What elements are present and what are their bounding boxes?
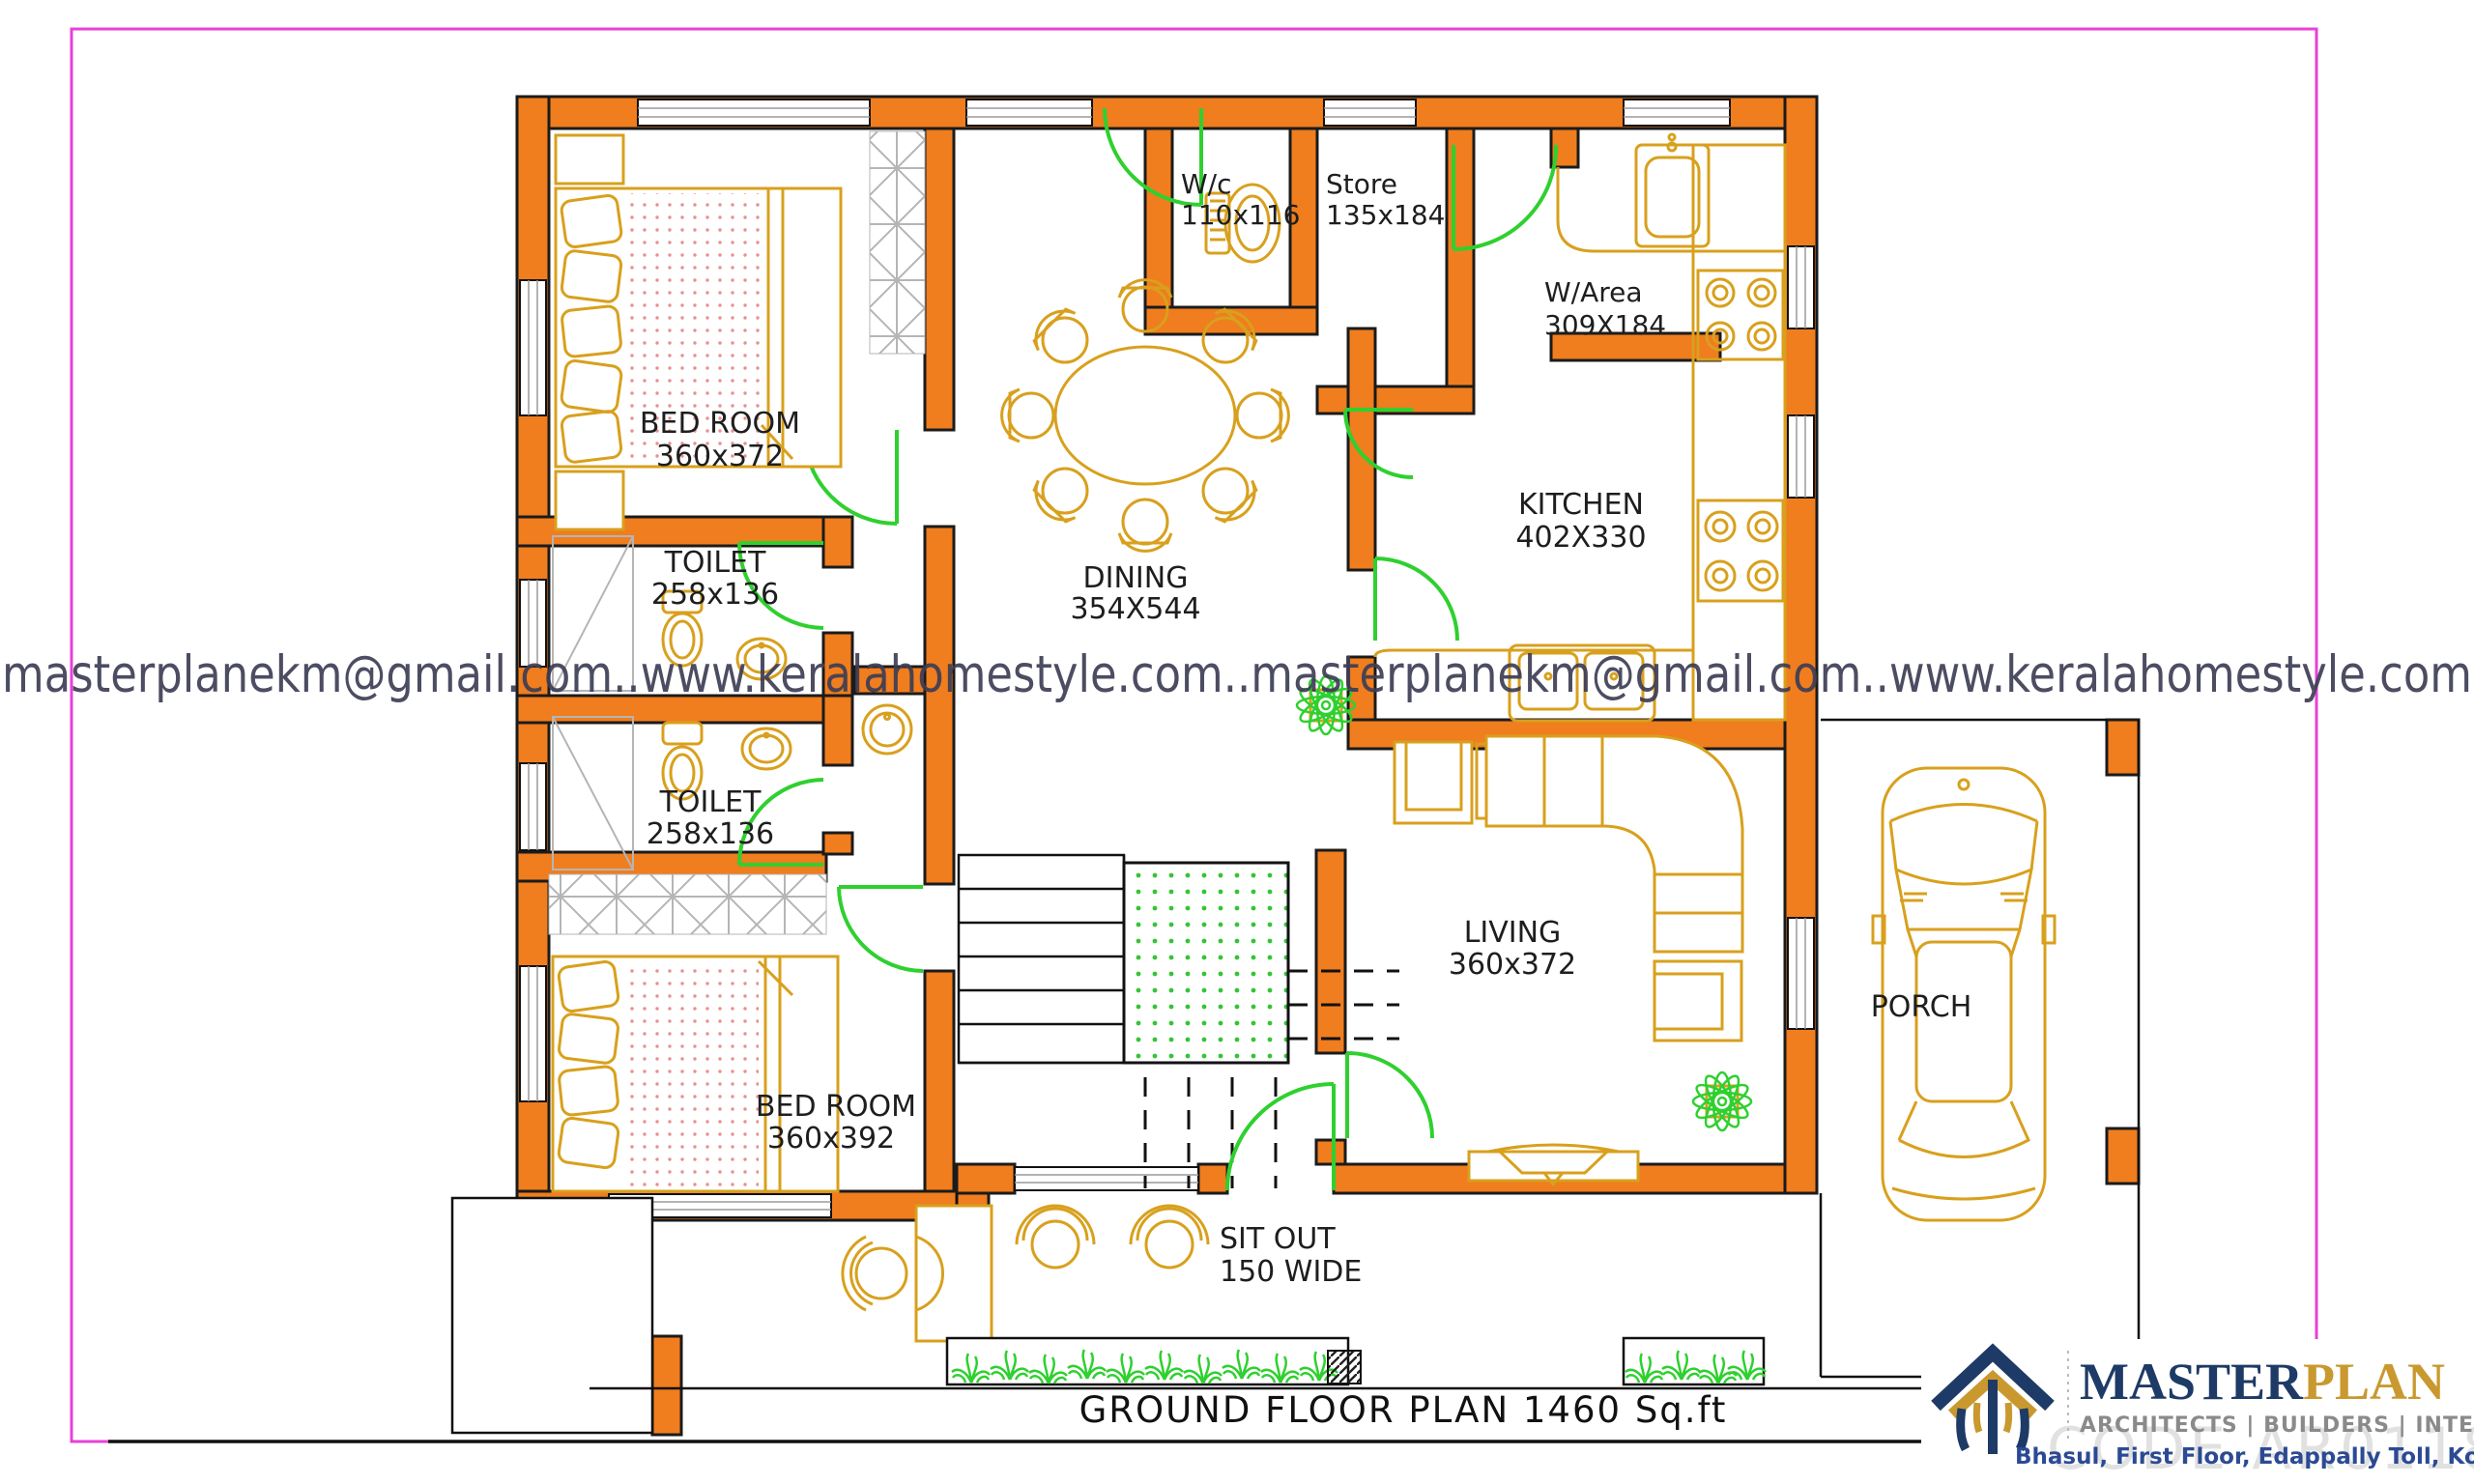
- side-table-icon: [556, 135, 623, 184]
- kitchen-door: [1375, 558, 1457, 641]
- brand-tagline: ARCHITECTS | BUILDERS | INTERIORS: [2080, 1413, 2474, 1438]
- email-watermark: masterplanekm@gmail.com..www.keralahomes…: [2, 645, 2472, 704]
- living-door: [1347, 1053, 1432, 1138]
- window: [520, 763, 546, 850]
- living-label: LIVING: [1464, 916, 1562, 950]
- window: [1324, 100, 1416, 126]
- store-label: Store: [1326, 168, 1397, 200]
- bedroom2-door: [839, 887, 923, 971]
- toilet1-size: 258x136: [651, 578, 779, 612]
- window: [1788, 246, 1814, 328]
- tv-unit-icon: [1469, 1145, 1638, 1184]
- pink-page-border: [72, 29, 2316, 1441]
- branding-block: CODE AR0118 MASTERPLAN ARCHITECTS | BUIL…: [1921, 1339, 2474, 1484]
- porch-label: PORCH: [1871, 990, 1972, 1024]
- wc-label: W/c: [1181, 168, 1232, 200]
- stove-icon: [1698, 500, 1783, 601]
- window: [1624, 100, 1730, 126]
- window: [1788, 918, 1814, 1029]
- sitout-label: SIT OUT: [1220, 1222, 1336, 1256]
- column-hatched: [1328, 1351, 1361, 1384]
- workarea-fixtures: [1558, 134, 1785, 720]
- window: [1015, 1167, 1198, 1190]
- porch-area: [1821, 720, 2139, 1377]
- dining-label: DINING: [1083, 561, 1189, 595]
- bedroom1-label: BED ROOM: [640, 407, 800, 441]
- dining-table-icon: [1055, 347, 1235, 484]
- toilet2-label: TOILET: [659, 785, 762, 819]
- floor-plan-page: BED ROOM 360x372 TOILET 258x136 TOILET 2…: [0, 0, 2474, 1484]
- kitchen-label: KITCHEN: [1518, 488, 1644, 522]
- window: [520, 280, 546, 415]
- bedroom2-size: 360x392: [767, 1122, 895, 1156]
- window: [966, 100, 1092, 126]
- dining-size: 354X544: [1070, 592, 1200, 626]
- brand-name: MASTERPLAN: [2080, 1353, 2445, 1411]
- desk-icon: [843, 1206, 992, 1341]
- bedroom1-size: 360x372: [656, 440, 784, 473]
- store-size: 135x184: [1326, 199, 1445, 231]
- sitout-size: 150 WIDE: [1220, 1255, 1362, 1289]
- side-table-icon: [556, 471, 623, 529]
- stair-landing: [1124, 863, 1288, 1063]
- stove-icon: [1698, 271, 1783, 359]
- wc-size: 110x116: [1181, 199, 1300, 231]
- armchair-icon: [1654, 961, 1741, 1041]
- lobby-washbasin-icon: [863, 705, 911, 754]
- window: [520, 966, 546, 1101]
- armchair-icon: [1395, 742, 1472, 823]
- warea-size: 309X184: [1544, 309, 1666, 341]
- side-step: [452, 1198, 652, 1433]
- window: [1788, 415, 1814, 498]
- planter-box: [1624, 1338, 1766, 1384]
- wardrobe-icon: [870, 131, 925, 354]
- main-entrance-door: [1227, 1084, 1334, 1190]
- bedroom2-label: BED ROOM: [756, 1090, 916, 1124]
- toilet1-label: TOILET: [664, 546, 766, 580]
- washbasin-icon: [742, 728, 791, 769]
- sink-icon: [1636, 134, 1709, 246]
- kitchen-size: 402X330: [1515, 521, 1646, 555]
- counter-icon: [1693, 145, 1785, 720]
- plan-title: GROUND FLOOR PLAN 1460 Sq.ft: [1079, 1389, 1728, 1431]
- floor-plan-drawing: BED ROOM 360x372 TOILET 258x136 TOILET 2…: [0, 0, 2474, 1484]
- wardrobe-icon: [549, 874, 826, 934]
- brand-address: Bhasul, First Floor, Edappally Toll, Koc…: [2015, 1444, 2474, 1470]
- bed-icon: [553, 956, 838, 1191]
- plant-icon: [1693, 1072, 1752, 1131]
- planter-box: [947, 1338, 1348, 1384]
- warea-label: W/Area: [1544, 276, 1643, 308]
- window: [638, 100, 870, 126]
- toilet2-size: 258x136: [647, 817, 774, 851]
- living-size: 360x372: [1449, 948, 1576, 982]
